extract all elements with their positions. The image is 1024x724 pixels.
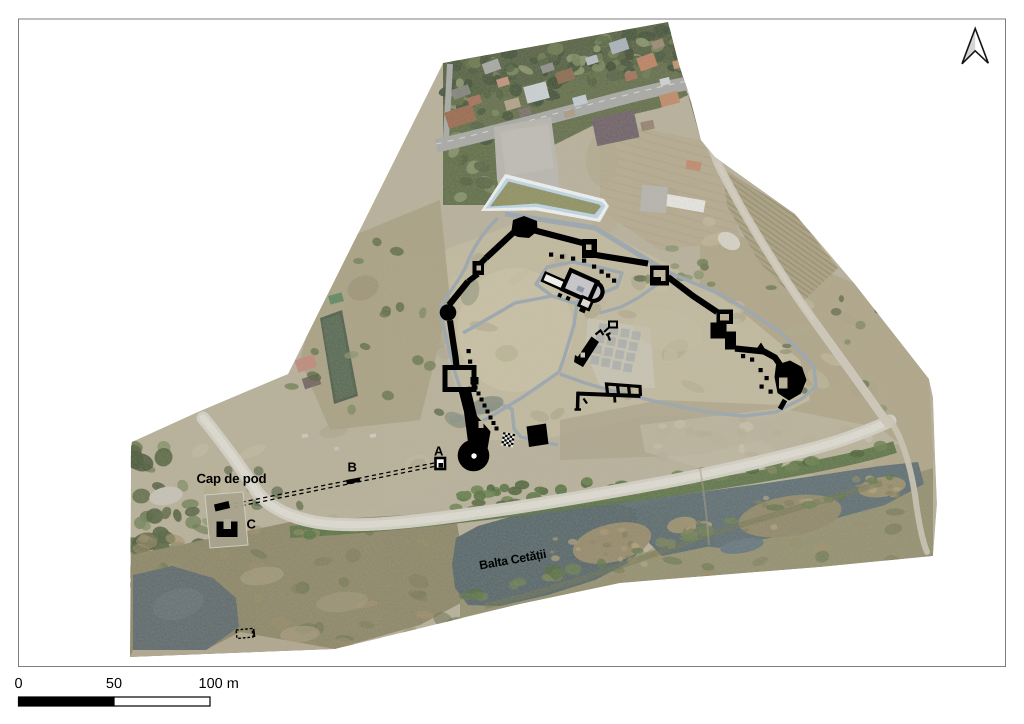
svg-text:50: 50 [106, 676, 122, 692]
svg-text:C: C [247, 517, 257, 532]
svg-text:0: 0 [14, 676, 22, 692]
svg-text:100 m: 100 m [199, 676, 239, 692]
svg-text:Cap de pod: Cap de pod [197, 471, 267, 486]
svg-text:A: A [434, 444, 444, 459]
svg-text:B: B [348, 460, 357, 475]
